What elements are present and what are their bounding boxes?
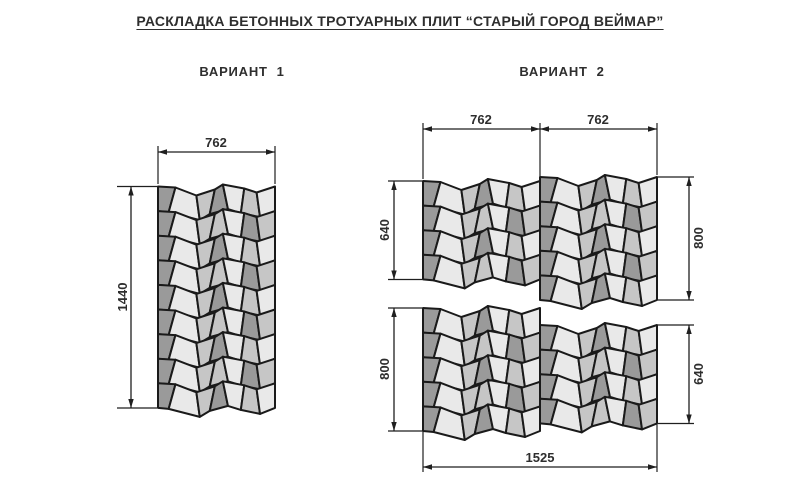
dimension-arrow	[391, 181, 396, 190]
dimension-value: 800	[691, 227, 706, 249]
paving-layout-diagram: 76214407627626408008006401525	[0, 0, 800, 496]
paving-tile	[639, 399, 657, 430]
dimension-arrow	[423, 126, 432, 131]
dimension-arrow	[391, 308, 396, 317]
dimension-arrow	[128, 187, 133, 196]
variant2-upper-left-panel	[423, 179, 540, 288]
dimension-arrow	[266, 149, 275, 154]
v1-width-dim: 762	[158, 135, 275, 184]
dimension-value: 762	[587, 112, 609, 127]
dimension-value: 1440	[115, 283, 130, 312]
dimension-arrow	[423, 464, 432, 469]
v2-width-right-dim: 762	[540, 112, 657, 175]
dimension-arrow	[128, 399, 133, 408]
v2-upper-left-height-dim: 640	[377, 181, 422, 280]
variant2-lower-left-panel	[423, 306, 540, 440]
paving-tile	[522, 255, 540, 286]
dimension-value: 640	[691, 363, 706, 385]
paving-tile	[522, 406, 540, 437]
v2-lower-right-height-dim: 640	[658, 325, 706, 424]
drawing-sheet: РАСКЛАДКА БЕТОННЫХ ТРОТУАРНЫХ ПЛИТ “СТАР…	[0, 0, 800, 496]
dimension-arrow	[686, 291, 691, 300]
dimension-arrow	[540, 126, 549, 131]
dimension-value: 762	[470, 112, 492, 127]
v2-lower-left-height-dim: 800	[377, 308, 422, 431]
dimension-arrow	[648, 464, 657, 469]
v2-upper-right-height-dim: 800	[658, 177, 706, 300]
dimension-arrow	[686, 177, 691, 186]
dimension-arrow	[531, 126, 540, 131]
dimension-arrow	[648, 126, 657, 131]
dimension-arrow	[686, 325, 691, 334]
paving-tile	[257, 383, 275, 414]
dimension-value: 1525	[526, 450, 555, 465]
dimension-arrow	[391, 422, 396, 431]
dimension-value: 640	[377, 219, 392, 241]
dimension-arrow	[686, 415, 691, 424]
v1-height-dim: 1440	[115, 187, 157, 409]
dimension-arrow	[391, 271, 396, 280]
dimension-value: 762	[205, 135, 227, 150]
variant2-upper-right-panel	[540, 175, 657, 309]
variant2-lower-right-panel	[540, 323, 657, 432]
variant1-panel	[158, 185, 275, 417]
paving-tile	[639, 275, 657, 306]
dimension-arrow	[158, 149, 167, 154]
dimension-value: 800	[377, 358, 392, 380]
v2-width-left-dim: 762	[423, 112, 540, 179]
